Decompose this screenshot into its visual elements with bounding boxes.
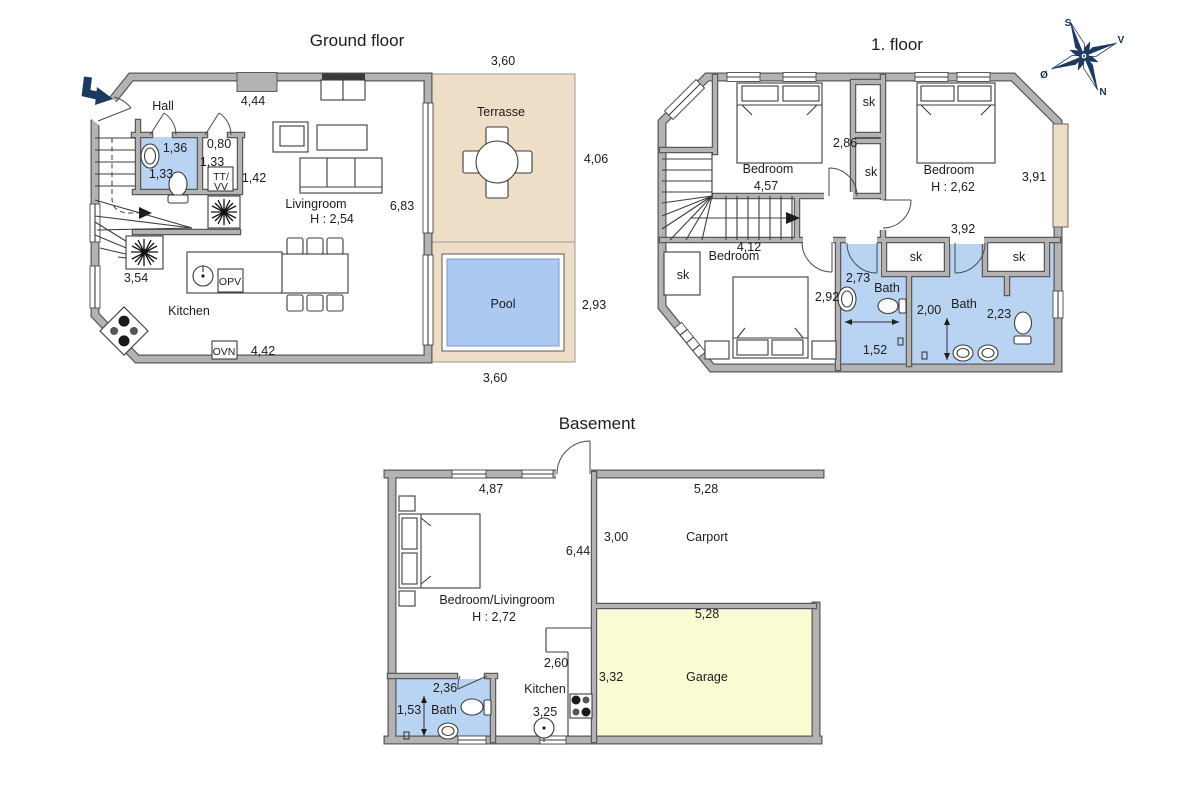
ground-outer-wall	[95, 77, 428, 359]
compass-rose: S V N Ø	[1038, 9, 1131, 104]
compass-v: V	[1118, 35, 1125, 46]
dim-1-36: 1,36	[163, 141, 187, 155]
dim-2-73: 2,73	[846, 271, 870, 285]
dim-1-33-closet: 1,33	[200, 155, 224, 169]
dim-2-36: 2,36	[433, 681, 457, 695]
balcony-strip	[1053, 124, 1068, 227]
dim-2-93: 2,93	[582, 298, 606, 312]
bed1-icon	[737, 83, 822, 163]
dim-2-86: 2,86	[833, 136, 857, 150]
dim-1-33-bath: 1,33	[149, 167, 173, 181]
bedroom2-label: Bedroom	[924, 163, 975, 177]
dim-3-54: 3,54	[124, 271, 148, 285]
basement-plan: Basement 4,87 Bedroom/Livingroom H : 2,7…	[388, 414, 820, 744]
dim-5-28-garage: 5,28	[695, 607, 719, 621]
dim-4-44: 4,44	[241, 94, 265, 108]
tv-bench	[321, 80, 343, 100]
floorplan-page: Ground floor Hall 4,44 1,36 1,33 0,80 1,…	[0, 0, 1200, 800]
livingroom-furniture	[273, 80, 382, 193]
stairs-arrow	[139, 207, 152, 219]
dim-3-60-bottom: 3,60	[483, 371, 507, 385]
bath2-door-opening	[950, 236, 984, 244]
sink-icon	[978, 345, 998, 361]
bedroom3-door-opening	[803, 236, 833, 244]
dim-1-42: 1,42	[242, 171, 266, 185]
dim-2-60: 2,60	[544, 656, 568, 670]
bedroom3-door	[802, 242, 832, 272]
sk-label-3: sk	[677, 268, 690, 282]
dim-3-00: 3,00	[604, 530, 628, 544]
carport-label: Carport	[686, 530, 728, 544]
dim-5-28-carport: 5,28	[694, 482, 718, 496]
dim-1-53: 1,53	[397, 703, 421, 717]
terrace-label: Terrasse	[477, 105, 525, 119]
ground-floor-plan: Ground floor Hall 4,44 1,36 1,33 0,80 1,…	[86, 31, 608, 385]
livingroom-label: Livingroom	[285, 197, 346, 211]
dining-table	[282, 254, 348, 293]
first-floor-title: 1. floor	[871, 35, 923, 54]
pool-label: Pool	[490, 297, 515, 311]
bath2-label: Bath	[951, 297, 977, 311]
bedroom2-door	[883, 200, 911, 228]
basement-bath-label: Bath	[431, 703, 457, 717]
garage-label: Garage	[686, 670, 728, 684]
dining-set	[282, 238, 348, 311]
vv-label: VV	[214, 181, 228, 193]
bedroom2-door-opening	[879, 200, 887, 230]
floorplan-image: Ground floor Hall 4,44 1,36 1,33 0,80 1,…	[0, 0, 1200, 800]
first-radiator	[675, 322, 706, 357]
livingroom-height: H : 2,54	[310, 212, 354, 226]
bedroom1-label: Bedroom	[743, 162, 794, 176]
bath-door	[150, 113, 176, 135]
bedroom2-height: H : 2,62	[931, 180, 975, 194]
compass-n: N	[1099, 87, 1106, 98]
dim-0-80: 0,80	[207, 137, 231, 151]
toilet-icon	[461, 699, 483, 715]
sk-label-5: sk	[1013, 250, 1026, 264]
dim-3-92: 3,92	[951, 222, 975, 236]
dim-2-23: 2,23	[987, 307, 1011, 321]
basement-entry-opening	[556, 469, 591, 479]
dim-6-44: 6,44	[566, 544, 590, 558]
ovn-label: OVN	[213, 346, 236, 358]
ground-outer-wall-edge	[95, 77, 428, 359]
sk-label-4: sk	[910, 250, 923, 264]
dim-3-25: 3,25	[533, 705, 557, 719]
bath1-door-opening	[846, 236, 877, 244]
dim-6-83: 6,83	[390, 199, 414, 213]
dim-4-42: 4,42	[251, 344, 275, 358]
dim-3-60-top: 3,60	[491, 54, 515, 68]
top-window-dark	[322, 74, 365, 81]
basement-kitchen-label: Kitchen	[524, 682, 566, 696]
toilet-icon	[878, 299, 898, 314]
bath1-label: Bath	[874, 281, 900, 295]
sk-label-2: sk	[865, 165, 878, 179]
toilet-icon	[1015, 312, 1032, 334]
basement-bed-icon	[399, 496, 480, 606]
dim-4-57: 4,57	[754, 179, 778, 193]
stove-icon	[100, 307, 148, 355]
fan-icon-2	[126, 236, 163, 269]
compass-s: S	[1065, 18, 1072, 29]
ground-floor-title: Ground floor	[310, 31, 405, 50]
dim-2-92: 2,92	[815, 290, 839, 304]
closet-door	[205, 113, 231, 135]
dim-4-87: 4,87	[479, 482, 503, 496]
dim-3-32: 3,32	[599, 670, 623, 684]
basement-title: Basement	[559, 414, 636, 433]
dim-4-12: 4,12	[737, 240, 761, 254]
bed2-icon	[917, 83, 995, 163]
dim-2-00: 2,00	[917, 303, 941, 317]
bedroom1-door-opening	[824, 192, 853, 200]
dim-4-06: 4,06	[584, 152, 608, 166]
terrace-table	[476, 141, 518, 183]
sink-icon	[438, 723, 458, 739]
hall-label: Hall	[152, 99, 174, 113]
sk-label-1: sk	[863, 95, 876, 109]
ground-wall-notch	[237, 73, 277, 92]
kitchen-label: Kitchen	[168, 304, 210, 318]
opv-label: OPV	[219, 276, 241, 288]
dim-1-52: 1,52	[863, 343, 887, 357]
coffee-table	[317, 125, 367, 150]
sofa	[300, 158, 382, 193]
dim-3-91: 3,91	[1022, 170, 1046, 184]
bedliving-label: Bedroom/Livingroom	[439, 593, 554, 607]
first-floor-plan: 1. floor Bedroom 4,57 2,86 sk sk Bedroom…	[662, 35, 1068, 368]
compass-o: Ø	[1040, 70, 1048, 81]
sink-icon	[953, 345, 973, 361]
bedliving-height: H : 2,72	[472, 610, 516, 624]
fan-icon-1	[208, 196, 240, 228]
